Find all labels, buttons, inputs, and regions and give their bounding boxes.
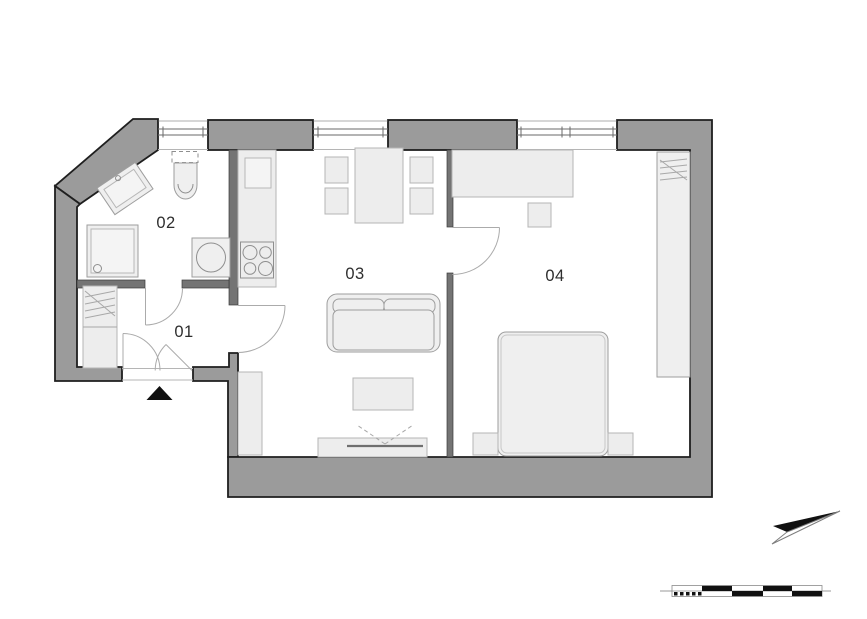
door-bathroom <box>146 288 183 325</box>
nightstand <box>608 433 633 455</box>
bed-icon <box>498 332 608 456</box>
washing-machine-icon <box>192 238 230 277</box>
bedroom-stool <box>528 203 551 227</box>
bedroom-desk <box>452 150 573 197</box>
window-bedroom <box>517 121 617 150</box>
shower-icon <box>87 225 138 277</box>
floor-plan-drawing: 01 02 03 04 <box>0 0 867 619</box>
wall-entrance-right-and-lower-left <box>193 353 238 457</box>
kitchen-sink-icon <box>245 158 271 188</box>
room-label-02: 02 <box>156 214 175 232</box>
partition-bath-hall-right <box>182 280 229 288</box>
wall-top-pier-b <box>388 120 517 150</box>
dining-chair <box>410 188 433 214</box>
toilet-cistern <box>172 152 198 163</box>
hall-furniture <box>83 286 117 368</box>
window-living-room <box>313 121 388 150</box>
scale-bar <box>660 586 831 597</box>
dining-chair <box>325 188 348 214</box>
coffee-table <box>353 378 413 410</box>
dining-set <box>325 148 433 223</box>
room-label-03: 03 <box>345 265 364 283</box>
doors <box>122 228 500 401</box>
nightstand <box>473 433 498 455</box>
dining-table <box>355 148 403 223</box>
dining-chair <box>410 157 433 183</box>
partition-living-bedroom-bottom <box>447 273 453 457</box>
kitchen-block <box>238 150 276 287</box>
dining-chair <box>325 157 348 183</box>
toilet-icon <box>174 163 197 199</box>
floor-plan-page: 01 02 03 04 <box>0 0 867 619</box>
entrance-marker-triangle <box>147 386 173 400</box>
bedroom-furniture <box>452 150 690 456</box>
bedroom-wardrobe <box>657 152 690 377</box>
room-label-01: 01 <box>174 323 193 341</box>
door-hall-living <box>238 306 285 353</box>
tv-stand <box>318 425 427 457</box>
wall-top-pier-a <box>208 120 313 150</box>
window-bathroom <box>158 121 208 150</box>
sofa-icon <box>327 294 440 352</box>
room-label-04: 04 <box>545 267 564 285</box>
partition-bath-living <box>229 150 238 305</box>
door-bedroom <box>453 228 500 275</box>
north-arrow-icon <box>772 511 840 544</box>
living-cabinet <box>238 372 262 455</box>
